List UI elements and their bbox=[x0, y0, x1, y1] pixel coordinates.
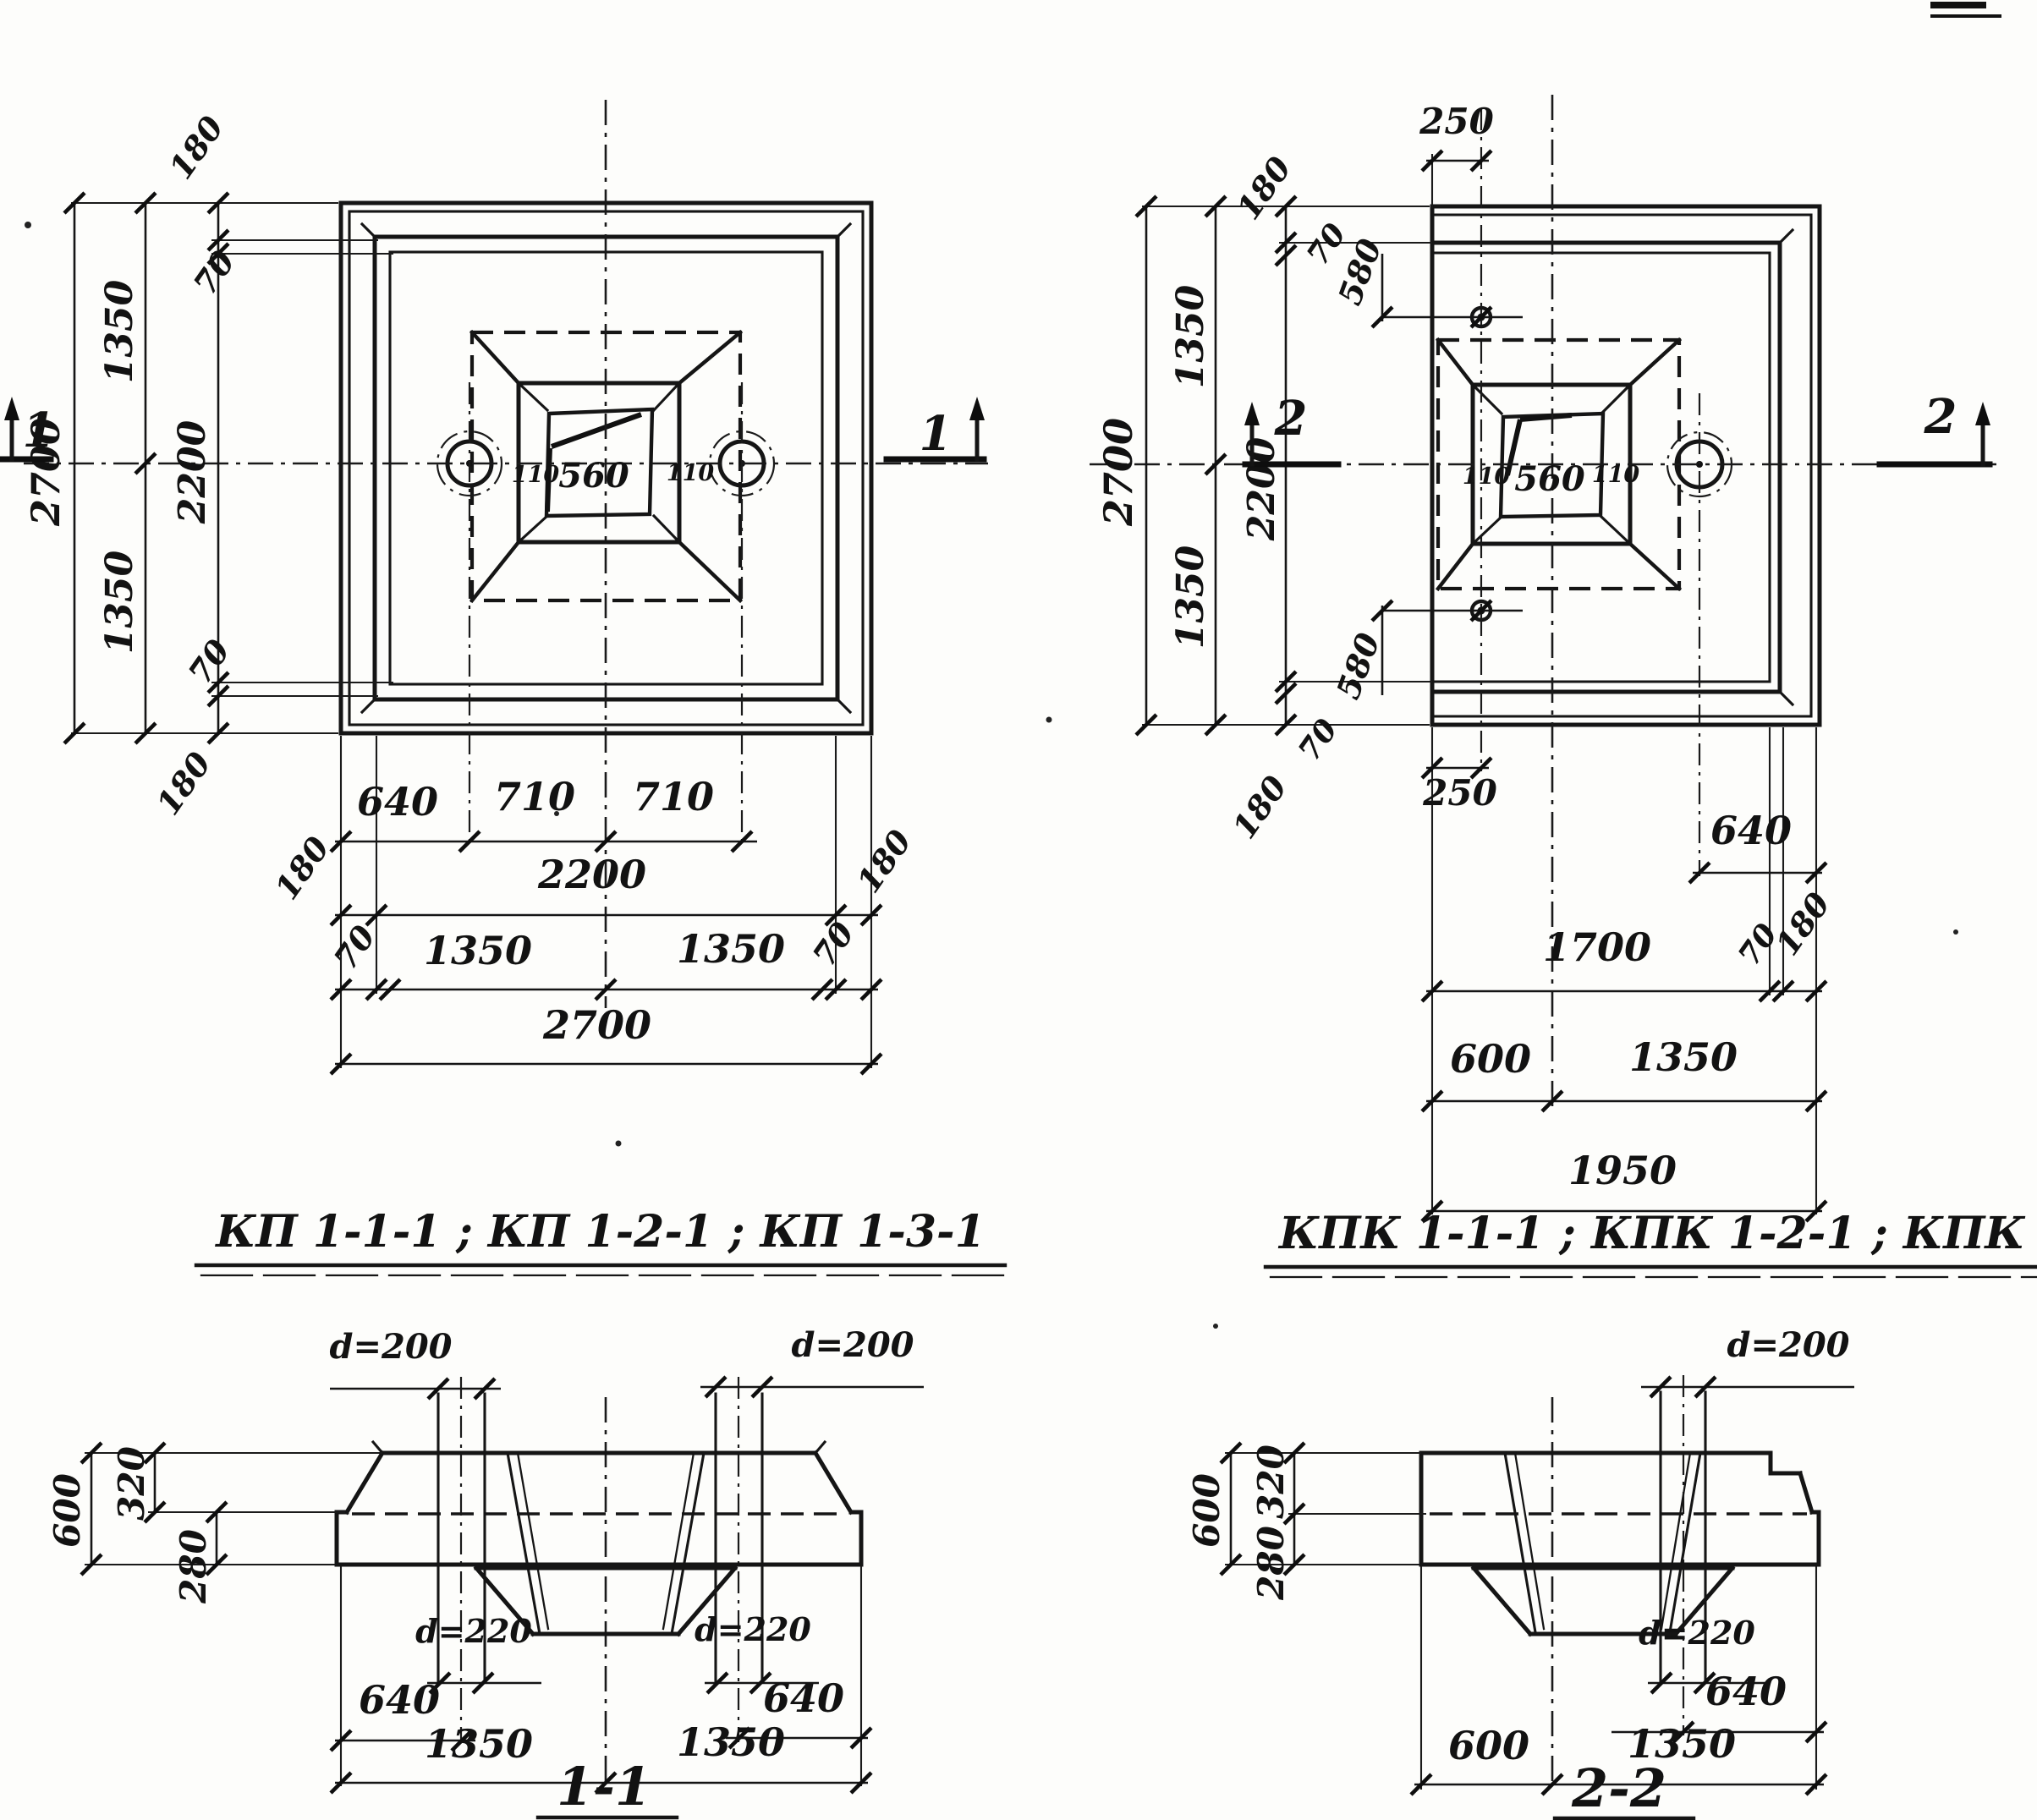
lp-dim-2200-h: 2200 bbox=[537, 852, 646, 897]
lp-dim-180r: 180 bbox=[849, 822, 920, 899]
lp-dim-2700-h: 2700 bbox=[542, 1002, 651, 1048]
left-plan-dims-bottom: 640 710 710 180 2200 180 70 1350 1350 70… bbox=[267, 736, 920, 1074]
page-edge-mark bbox=[1930, 5, 2001, 16]
s11-dim-640l: 640 bbox=[359, 1677, 440, 1723]
section-mark-1-right: 1 bbox=[887, 397, 985, 462]
s11-d220-left: d=220 bbox=[415, 1612, 532, 1650]
title-left-block: КП 1-1-1 ; КП 1-2-1 ; КП 1-3-1 bbox=[196, 1206, 1005, 1275]
lp-dim-1350l: 1350 bbox=[424, 928, 532, 973]
section-mark-2-left-label: 2 bbox=[1274, 391, 1308, 447]
section-mark-2-right-label: 2 bbox=[1924, 389, 1957, 445]
lp-socket-110-right: 110 bbox=[667, 460, 715, 486]
lp-dim-180l: 180 bbox=[267, 829, 338, 906]
rp-socket-110-right: 110 bbox=[1592, 462, 1640, 488]
lp-dim-180-bot: 180 bbox=[149, 744, 219, 821]
s11-dim-280: 280 bbox=[173, 1529, 214, 1604]
lp-dim-70r: 70 bbox=[804, 914, 862, 973]
section-mark-1-left: 1 bbox=[2, 397, 55, 459]
drawing-sheet: 2700 1350 1350 2200 180 70 70 180 640 71… bbox=[0, 0, 2037, 1820]
rp-dim-1700: 1700 bbox=[1543, 924, 1651, 970]
s22-block-outline bbox=[1421, 1453, 1819, 1565]
rp-dim-180-top: 180 bbox=[1229, 149, 1299, 226]
lp-dim-180-top: 180 bbox=[162, 108, 232, 185]
s22-socket-walls bbox=[1505, 1453, 1700, 1632]
section-1-1: d=200 d=200 600 320 280 d=220 d=220 640 … bbox=[47, 1325, 924, 1817]
rp-dim-2700-v: 2700 bbox=[1095, 418, 1141, 527]
s22-socket-walls-inner bbox=[1515, 1453, 1690, 1629]
s11-caption: 1-1 bbox=[557, 1756, 651, 1817]
rp-dim-180-bot: 180 bbox=[1225, 768, 1295, 845]
s11-d200-right: d=200 bbox=[792, 1325, 914, 1365]
s22-dim-600h: 600 bbox=[1448, 1723, 1529, 1768]
rp-dim-1350-bot: 1350 bbox=[1169, 545, 1212, 649]
rp-dim-2200-v: 2200 bbox=[1240, 436, 1283, 541]
s22-dim-280: 280 bbox=[1250, 1526, 1292, 1601]
lp-dim-1350-bot: 1350 bbox=[98, 550, 141, 654]
s22-d200: d=200 bbox=[1727, 1325, 1850, 1365]
section-mark-2-right: 2 bbox=[1880, 389, 1990, 464]
rp-dim-180-h: 180 bbox=[1768, 885, 1838, 962]
rp-dim-580-bot: 580 bbox=[1329, 628, 1388, 704]
s11-d220-right: d=220 bbox=[695, 1610, 811, 1648]
s11-dim-1350r: 1350 bbox=[677, 1719, 785, 1765]
lp-dim-70-top: 70 bbox=[185, 243, 243, 302]
rp-socket-560: 560 bbox=[1514, 459, 1585, 499]
lp-socket-560: 560 bbox=[558, 456, 629, 496]
title-left: КП 1-1-1 ; КП 1-2-1 ; КП 1-3-1 bbox=[214, 1206, 986, 1258]
s22-dim-640: 640 bbox=[1705, 1669, 1787, 1714]
rp-dim-70-bot: 70 bbox=[1292, 713, 1345, 768]
lp-dim-2200-v: 2200 bbox=[171, 419, 214, 524]
left-plan-dims-left: 2700 1350 1350 2200 180 70 70 180 bbox=[23, 108, 393, 821]
rp-dim-250-top: 250 bbox=[1419, 101, 1494, 142]
lp-dim-1350-top: 1350 bbox=[98, 279, 141, 383]
rp-dim-1350-top: 1350 bbox=[1169, 284, 1212, 388]
lp-dim-710a: 710 bbox=[494, 774, 575, 820]
s22-dim-600: 600 bbox=[1186, 1473, 1227, 1548]
lp-socket-110-left: 110 bbox=[512, 462, 560, 488]
s22-caption: 2-2 bbox=[1571, 1757, 1666, 1819]
rp-dim-640: 640 bbox=[1710, 808, 1792, 853]
lp-dim-640: 640 bbox=[357, 779, 438, 825]
lp-dim-70l: 70 bbox=[326, 918, 383, 977]
s22-dim-320: 320 bbox=[1250, 1444, 1292, 1519]
lp-dim-1350r: 1350 bbox=[677, 926, 785, 972]
rp-dim-1950: 1950 bbox=[1568, 1148, 1677, 1193]
s11-dim-600: 600 bbox=[47, 1473, 88, 1548]
section-2-2: d=200 600 320 280 d=220 640 600 1350 2-2 bbox=[1186, 1325, 1854, 1819]
title-right-block: КПК 1-1-1 ; КПК 1-2-1 ; КПК 1-3-1 bbox=[1266, 1208, 2037, 1277]
rp-socket-110-left: 110 bbox=[1463, 463, 1511, 490]
rp-dim-600: 600 bbox=[1450, 1036, 1531, 1082]
section-mark-1-left-label: 1 bbox=[23, 403, 56, 458]
foundation-drawing: 2700 1350 1350 2200 180 70 70 180 640 71… bbox=[0, 0, 2037, 1820]
title-right: КПК 1-1-1 ; КПК 1-2-1 ; КПК 1-3-1 bbox=[1277, 1208, 2037, 1259]
s11-dim-320: 320 bbox=[111, 1446, 152, 1521]
rp-dim-250-bot: 250 bbox=[1422, 772, 1497, 814]
rp-dim-1350: 1350 bbox=[1629, 1034, 1738, 1080]
lp-dim-710b: 710 bbox=[633, 774, 714, 820]
left-plan-view bbox=[24, 100, 988, 1008]
s11-dim-1350l: 1350 bbox=[425, 1721, 533, 1767]
s22-d220: d=220 bbox=[1639, 1614, 1755, 1652]
s11-block-outline bbox=[337, 1453, 861, 1565]
section-mark-1-right-label: 1 bbox=[920, 406, 953, 462]
s11-dim-640r: 640 bbox=[763, 1675, 844, 1721]
s11-d200-left: d=200 bbox=[330, 1327, 453, 1367]
